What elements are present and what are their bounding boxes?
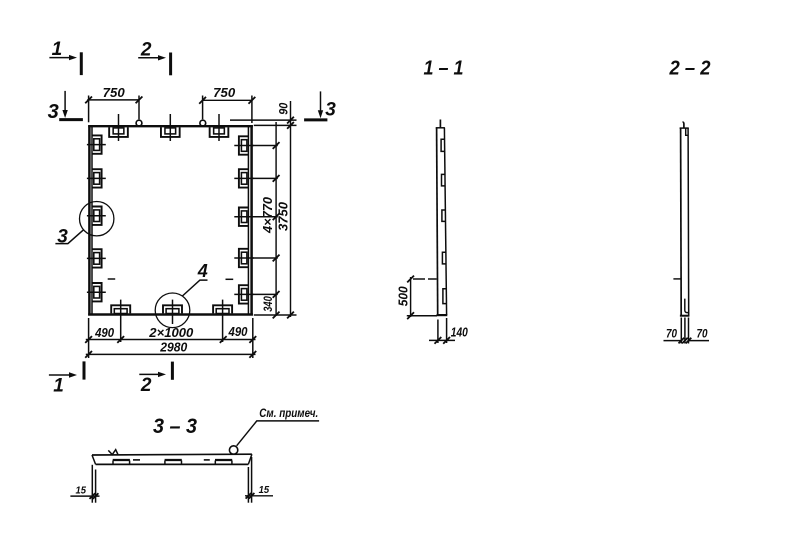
svg-text:3: 3 [325,100,336,121]
svg-text:2: 2 [140,375,152,396]
svg-text:2: 2 [140,40,152,61]
svg-text:140: 140 [451,326,468,340]
svg-text:750: 750 [213,86,235,100]
svg-text:1: 1 [53,376,64,397]
svg-text:4: 4 [197,261,208,281]
svg-text:490: 490 [228,325,248,339]
svg-text:340: 340 [263,296,275,312]
svg-text:3750: 3750 [277,202,291,231]
svg-text:2 – 2: 2 – 2 [669,58,711,80]
svg-text:См. примеч.: См. примеч. [259,408,318,420]
svg-text:70: 70 [697,328,709,340]
svg-text:4×770: 4×770 [261,197,275,234]
svg-text:90: 90 [278,102,290,115]
svg-text:490: 490 [94,326,114,340]
svg-text:3: 3 [57,226,68,247]
svg-text:15: 15 [76,484,87,496]
svg-text:2980: 2980 [159,341,187,355]
svg-text:1: 1 [52,39,63,60]
svg-text:750: 750 [103,86,125,100]
svg-text:3: 3 [48,101,59,123]
svg-text:1 – 1: 1 – 1 [424,58,464,80]
svg-text:2×1000: 2×1000 [148,326,193,340]
svg-text:3 – 3: 3 – 3 [153,415,197,438]
svg-text:70: 70 [666,328,678,340]
svg-text:500: 500 [397,286,411,306]
svg-text:15: 15 [259,484,270,496]
